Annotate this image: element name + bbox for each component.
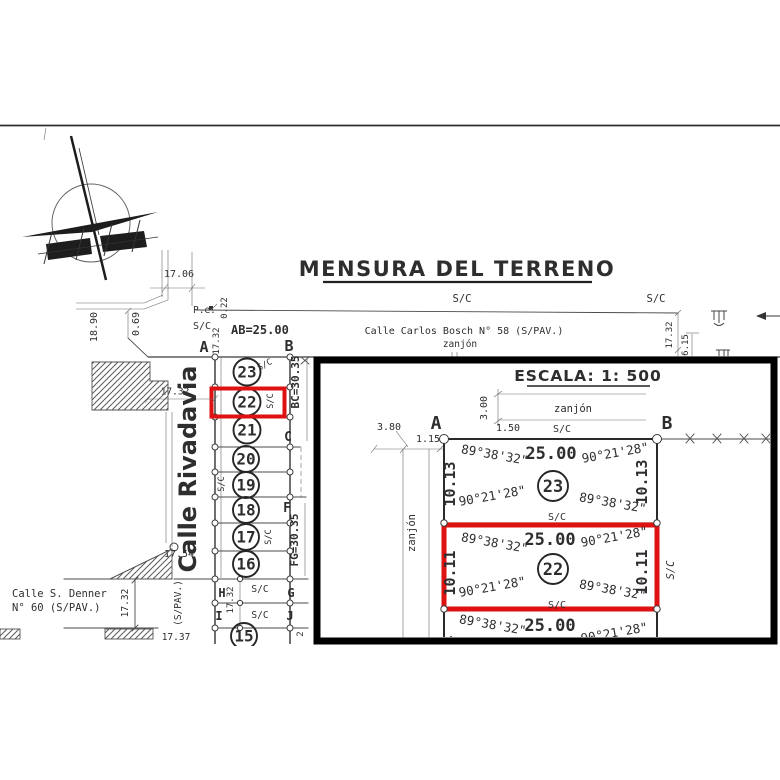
corner-c-label: C: [284, 430, 292, 445]
dim-17-32-a: 17.32: [212, 327, 222, 354]
sc-label-street-right: S/C: [647, 293, 666, 305]
street-carlos-bosch-label: Calle Carlos Bosch N° 58 (S/PAV.): [365, 326, 564, 337]
inset-scale-label: ESCALA: 1: 500: [514, 367, 662, 385]
fg-length-label: FG=30.35: [288, 514, 301, 567]
sc-label-row-hg: S/C: [251, 584, 268, 595]
bc-length-label: BC=30.35: [289, 356, 302, 409]
flow-arrow-icon: [756, 312, 780, 320]
inset-corner-a-label: A: [431, 413, 442, 434]
street-denner-label-1: Calle S. Denner: [12, 588, 107, 600]
sc-label-lot23: S/C: [256, 357, 274, 373]
zanjon-label-street: zanjón: [443, 339, 477, 350]
corner-b-label: B: [284, 337, 293, 355]
dim-6-15: 6.15: [681, 334, 691, 356]
fence-x-top: [301, 357, 309, 364]
inset-sc-top: S/C: [553, 424, 571, 435]
inset-lot22-number: 22: [543, 560, 563, 580]
inset-border: [317, 360, 774, 641]
dim-17-37: 17.37: [162, 632, 191, 643]
ab-length-label: AB=25.00: [231, 323, 289, 337]
inset-lot23-side-left: 10.13: [441, 461, 459, 506]
dim-17-32-denner: 17.32: [120, 589, 131, 618]
inset-panel: ESCALA: 1: 500 3.00 zanjón 1.50 S/C 3.80…: [317, 360, 774, 681]
culvert-icon-2: [716, 350, 730, 356]
north-arrow-icon: [22, 136, 158, 280]
lot-number-18: 18: [236, 501, 255, 520]
inset-lot21-length-top: 25.00: [524, 616, 575, 636]
inset-dim-1-15: 1.15: [416, 434, 440, 445]
survey-document: MENSURA DEL TERRENO 17.06 18.90 0.69 P.e…: [0, 0, 780, 780]
lot-number-21: 21: [237, 421, 256, 440]
street-rivadavia-overlay-label: Calle Rivadavia: [174, 366, 202, 573]
inset-sc-right-vertical: S/C: [665, 560, 677, 580]
inset-lot22-side-left: 10.11: [441, 550, 459, 595]
pe-point-marker: [209, 306, 213, 310]
street-denner-label-2: N° 60 (S/PAV.): [12, 602, 101, 614]
sc-label-street-center: S/C: [453, 293, 472, 305]
inset-dim-3-00: 3.00: [479, 396, 490, 420]
inset-dim-1-50: 1.50: [496, 423, 520, 434]
lot-number-17: 17: [236, 528, 255, 547]
sc-label-lot19: S/C: [217, 476, 227, 491]
lot-number-23: 23: [237, 363, 256, 382]
corner-j-label: J: [286, 609, 293, 623]
dim-18-90: 18.90: [89, 312, 100, 342]
corner-g-label: G: [287, 586, 294, 600]
inset-lot23-side-right: 10.13: [633, 459, 651, 504]
culvert-icon: [711, 311, 727, 326]
inset-corner-b-label: B: [662, 413, 673, 434]
dim-17-32-right: 17.32: [665, 321, 675, 348]
street-upper-edge: [196, 310, 678, 313]
inset-lot23-sc: S/C: [548, 512, 566, 523]
inset-lot22-length-top: 25.00: [524, 530, 575, 550]
hatched-corner-denner: [110, 549, 172, 579]
corner-f-label: F: [283, 501, 291, 516]
lot-number-22: 22: [237, 393, 256, 412]
inset-lot23-number: 23: [543, 477, 563, 497]
dim-0-69: 0.69: [131, 312, 142, 336]
sc-label-lot22: S/C: [266, 393, 276, 408]
inset-lot22-sc: S/C: [548, 600, 566, 611]
inset-zanjon-left-label: zanjón: [406, 514, 418, 552]
lot-number-20: 20: [236, 450, 255, 469]
dim-17-06: 17.06: [164, 269, 194, 280]
corner-a-label: A: [199, 338, 208, 356]
sc-label-lot17: S/C: [264, 529, 274, 544]
dim-0-22: 0.22: [220, 297, 230, 319]
lot-number-15: 15: [234, 627, 253, 646]
hatched-block-upper: [92, 362, 168, 410]
corner-i-label: I: [215, 609, 222, 623]
inset-lot23-length-top: 25.00: [525, 444, 576, 464]
page-title: MENSURA DEL TERRENO: [299, 257, 615, 281]
lot-number-19: 19: [236, 476, 255, 495]
sc-label-pe: S/C: [193, 321, 211, 332]
dim-fragment-2: 2: [296, 631, 306, 636]
inset-dim-3-80: 3.80: [377, 422, 401, 433]
sc-label-row-ij: S/C: [251, 610, 268, 621]
inset-zanjon-top-label: zanjón: [554, 403, 592, 415]
hatched-strip-denner: [105, 629, 153, 639]
hatched-strip-edge: [0, 629, 20, 639]
corner-h-label: H: [218, 586, 225, 600]
lot-number-16: 16: [236, 555, 255, 574]
dim-17-32-hblock: 17.32: [226, 586, 236, 613]
spav-vertical-label: (S/PAV.): [173, 580, 184, 626]
